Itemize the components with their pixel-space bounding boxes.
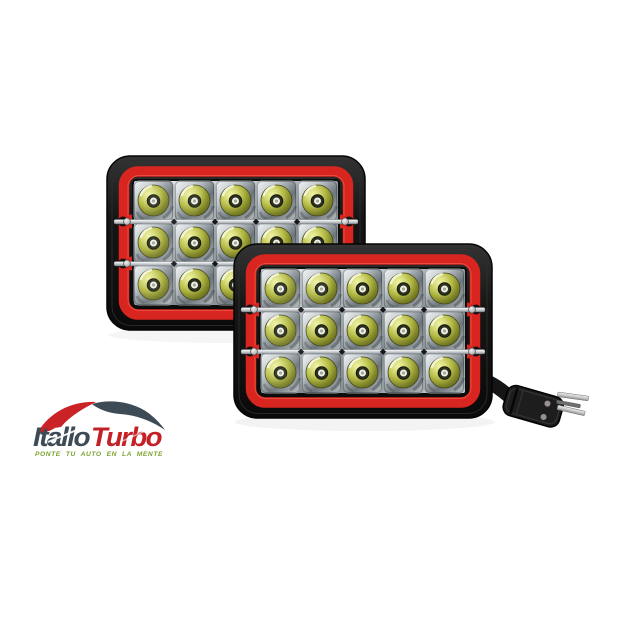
product-photo: Itallo Turbo PONTE TU AUTO EN LA MENTE: [0, 0, 625, 625]
brand-name-part2: Turbo: [91, 422, 162, 452]
product-photo-svg: Itallo Turbo PONTE TU AUTO EN LA MENTE: [0, 0, 625, 625]
brand-tagline: PONTE TU AUTO EN LA MENTE: [35, 451, 163, 458]
brand-logo: Itallo Turbo PONTE TU AUTO EN LA MENTE: [33, 401, 165, 458]
led-headlamp-front: [234, 244, 492, 418]
connector-boot: [501, 383, 565, 429]
